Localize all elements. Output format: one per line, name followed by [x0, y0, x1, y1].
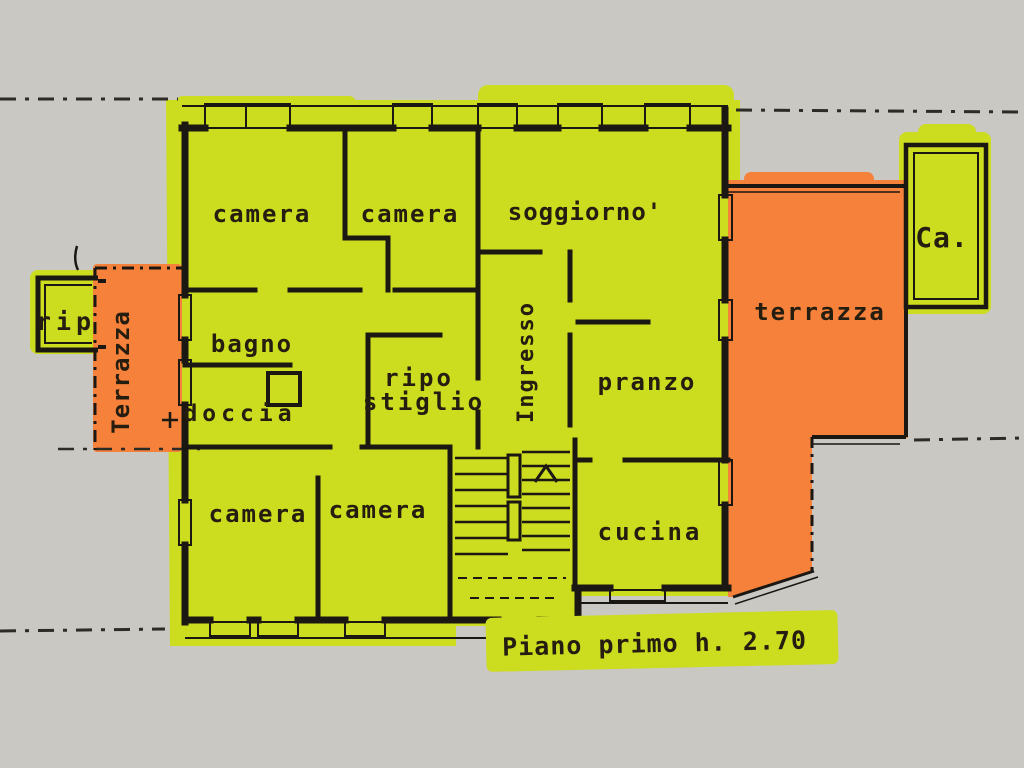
room-label-doccia: doccia [183, 401, 296, 427]
room-label-bagno: bagno [211, 330, 293, 358]
room-label-camera-top-left: camera [213, 200, 312, 228]
room-label-cucina: cucina [598, 518, 703, 546]
floor-plan-drawing: camera camera soggiorno' bagno doccia ri… [0, 0, 1024, 768]
scanned-floor-plan: camera camera soggiorno' bagno doccia ri… [0, 0, 1024, 768]
room-label-camera-top-middle: camera [361, 200, 460, 228]
room-label-pranzo: pranzo [598, 368, 697, 396]
room-label-terrazza-right: terrazza [754, 298, 886, 326]
room-label-soggiorno: soggiorno' [508, 198, 663, 226]
room-label-camera-bottom-middle: camera [329, 496, 428, 524]
room-label-camera-bottom-left: camera [209, 500, 308, 528]
room-label-terrazza-left: Terrazza [107, 310, 135, 434]
room-label-ripostiglio-line2: stiglio [363, 388, 485, 416]
room-label-ingresso: Ingresso [514, 301, 539, 423]
room-label-rip: rip [36, 307, 96, 336]
room-label-ca: Ca. [915, 221, 969, 254]
